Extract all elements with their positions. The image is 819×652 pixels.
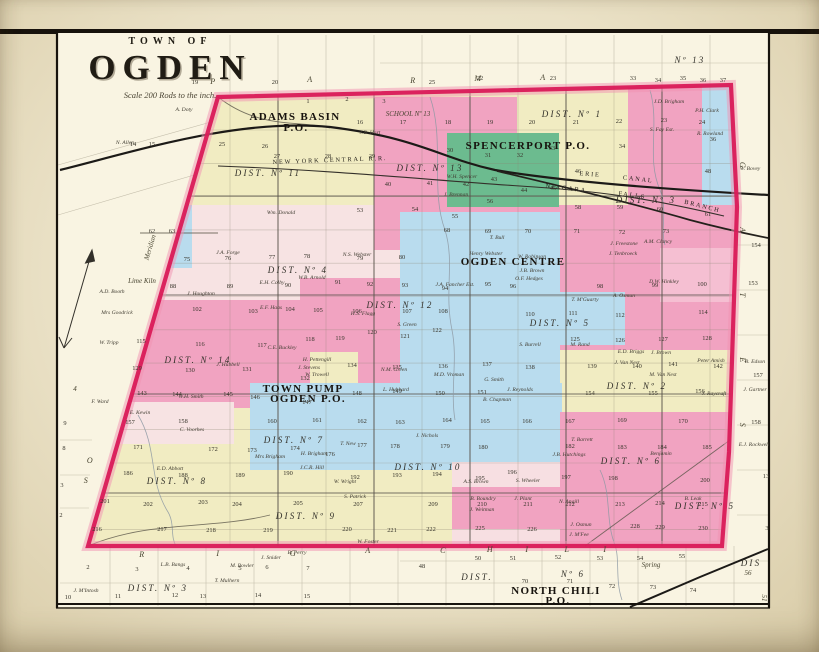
- lot-number: 13: [763, 473, 769, 480]
- adjacent-town-letter: I: [524, 545, 528, 554]
- lot-number: 50: [475, 555, 481, 562]
- lot-number: 125: [570, 336, 580, 343]
- lot-number: 18: [445, 119, 451, 126]
- owner-name: T. New: [340, 441, 356, 447]
- adjacent-town-letter: O: [87, 456, 93, 465]
- owner-name: E.F. Haas: [259, 305, 282, 311]
- lot-number: 48: [419, 563, 425, 570]
- lot-number: 62: [149, 228, 155, 235]
- lot-number: 161: [312, 417, 322, 424]
- patch-west-blush: [118, 402, 234, 444]
- lot-number: 2: [86, 564, 89, 571]
- lot-number: 222: [426, 526, 436, 533]
- adjacent-town-letter: L: [564, 545, 570, 554]
- district-label: DIST. Nº 12: [365, 300, 433, 310]
- lot-number: 92: [367, 281, 373, 288]
- lot-number: 162: [357, 418, 367, 425]
- lot-number: 220: [342, 526, 352, 533]
- margin-label: 56: [745, 569, 753, 577]
- owner-name: J.B. Brown: [520, 268, 545, 274]
- owner-name: H. Brigham: [300, 451, 327, 457]
- lot-number: 110: [525, 311, 534, 318]
- lot-number: 69: [485, 228, 491, 235]
- district-label: DIST. Nº 3: [127, 583, 188, 593]
- lot-number: 203: [198, 499, 208, 506]
- lot-number: 196: [507, 469, 517, 476]
- lot-number: 106: [352, 308, 362, 315]
- district-label: DIST. Nº 8: [146, 476, 207, 486]
- district-label: DIST. Nº 7: [263, 435, 324, 445]
- owner-name: Mrs Brigham: [254, 454, 285, 460]
- place-label: P.O.: [284, 122, 309, 134]
- adjacent-town-letter: T: [738, 293, 747, 298]
- lot-number: 33: [630, 75, 636, 82]
- lot-number: 160: [267, 418, 277, 425]
- owner-name: L.B. Bangs: [160, 562, 186, 568]
- lot-number: 205: [293, 500, 303, 507]
- lot-number: 93: [402, 282, 408, 289]
- lot-number: 165: [480, 418, 490, 425]
- lot-number: 127: [658, 336, 668, 343]
- lot-number: 41: [427, 180, 433, 187]
- lot-number: 158: [751, 419, 761, 426]
- owner-name: S. Burrell: [519, 342, 541, 348]
- lot-number: 145: [223, 391, 233, 398]
- owner-name: S. Patrick: [344, 494, 367, 500]
- lot-number: 33: [549, 145, 555, 152]
- lot-number: 51: [510, 555, 516, 562]
- patch-dist3-light: [660, 248, 739, 302]
- lot-number: 17: [400, 119, 407, 126]
- district-label: DIST. Nº 2: [606, 381, 667, 391]
- lot-number: 70: [522, 578, 528, 585]
- owner-name: A.D. Booth: [98, 289, 124, 295]
- owner-name: A. Doty: [174, 107, 193, 113]
- railroad-label: ERIE: [579, 170, 601, 178]
- lot-number: 21: [573, 119, 579, 126]
- lot-number: 35: [680, 75, 686, 82]
- lot-number: 128: [702, 335, 712, 342]
- lot-number: 202: [143, 501, 153, 508]
- lot-number: 63: [169, 228, 175, 235]
- lot-number: 197: [561, 474, 571, 481]
- lot-number: 75: [184, 256, 190, 263]
- owner-name: M. Bowler: [229, 563, 254, 569]
- lot-number: 32: [517, 152, 523, 159]
- lot-number: 24: [699, 119, 706, 126]
- lot-number: 11: [115, 593, 121, 600]
- lot-number: 25: [219, 141, 225, 148]
- map-scale-note: Scale 200 Rods to the inch.: [68, 90, 272, 100]
- lot-number: 157: [753, 372, 763, 379]
- lot-number: 185: [702, 444, 712, 451]
- lot-number: 163: [395, 419, 405, 426]
- lot-number: 70: [525, 228, 531, 235]
- lot-number: 142: [713, 363, 723, 370]
- owner-name: W.H. Spencer: [447, 174, 478, 180]
- lot-number: 134: [347, 362, 357, 369]
- lot-number: 80: [399, 254, 405, 261]
- lot-number: 114: [698, 309, 708, 316]
- lot-number: 15: [304, 593, 310, 600]
- lot-number: 176: [325, 451, 335, 458]
- margin-label: Spring: [642, 561, 661, 569]
- lot-number: 55: [679, 553, 685, 560]
- lot-number: 34: [655, 77, 662, 84]
- owner-name: F. Ward: [90, 399, 108, 405]
- lot-number: 107: [402, 308, 412, 315]
- lot-number: 195: [475, 475, 485, 482]
- lot-number: 148: [352, 390, 362, 397]
- lot-number: 59: [617, 204, 623, 211]
- lot-number: 166: [522, 418, 532, 425]
- district-label: Nº 13: [673, 55, 705, 65]
- lot-number: 188: [178, 472, 188, 479]
- lot-number: 178: [390, 443, 400, 450]
- owner-name: E.H. Colby: [258, 280, 285, 286]
- lot-number: 126: [615, 337, 625, 344]
- lot-number: 1: [306, 98, 309, 105]
- lot-number: 189: [235, 472, 245, 479]
- lot-number: 45: [550, 185, 556, 192]
- owner-name: T. M'Guarty: [571, 297, 599, 303]
- lot-number: 43: [491, 176, 497, 183]
- adjacent-town-letter: S: [738, 423, 747, 428]
- adjacent-town-letter: H: [486, 545, 494, 554]
- lot-number: 170: [678, 418, 688, 425]
- lot-number: 16: [357, 119, 363, 126]
- lot-number: 130: [185, 367, 195, 374]
- lot-number: 72: [619, 229, 625, 236]
- lot-number: 177: [357, 442, 367, 449]
- lot-number: 192: [350, 474, 360, 481]
- lot-number: 2: [59, 512, 62, 519]
- lot-number: 6: [265, 564, 268, 571]
- lot-number: 53: [597, 555, 603, 562]
- lot-number: 105: [313, 307, 323, 314]
- owner-name: W.H. Smith: [178, 394, 203, 400]
- lot-number: 55: [452, 213, 458, 220]
- owner-name: S. Fay Est.: [650, 127, 674, 133]
- lot-number: 89: [227, 283, 233, 290]
- lot-number: 118: [305, 336, 314, 343]
- owner-name: W. Bovey: [740, 166, 761, 172]
- owner-name: A. Osmun: [612, 293, 635, 299]
- map-title: OGDEN: [68, 48, 272, 88]
- lot-number: 58: [575, 204, 581, 211]
- lot-number: 73: [663, 228, 669, 235]
- lot-number: 151: [477, 389, 487, 396]
- owner-name: J. Stevens: [298, 365, 320, 371]
- lot-number: 108: [438, 308, 448, 315]
- margin-label: SCHOOL Nº 13: [386, 110, 431, 118]
- lot-number: 146: [250, 394, 260, 401]
- lot-number: 210: [477, 501, 487, 508]
- lot-number: 72: [609, 583, 615, 590]
- owner-name: M.D. Vroman: [433, 372, 464, 378]
- owner-name: C.E. Buckley: [267, 345, 297, 351]
- lot-number: 221: [387, 527, 397, 534]
- lot-number: 116: [195, 341, 204, 348]
- owner-name: B. Chapman: [483, 397, 511, 403]
- adjacent-town-letter: S: [84, 476, 89, 485]
- lot-number: 95: [485, 281, 491, 288]
- owner-name: J. Houghton: [187, 291, 215, 297]
- lot-number: 137: [482, 361, 492, 368]
- lot-number: 141: [668, 361, 678, 368]
- lot-number: 36: [700, 77, 706, 84]
- adjacent-town-letter: A: [306, 75, 312, 84]
- map-title-block: TOWN OF OGDEN Scale 200 Rods to the inch…: [68, 36, 272, 100]
- adjacent-town-letter: R: [138, 550, 144, 559]
- lot-number: 12: [172, 592, 178, 599]
- lot-number: 117: [257, 342, 267, 349]
- adjacent-town-letter: A: [738, 226, 747, 232]
- owner-name: Mrs Goodrick: [100, 310, 133, 316]
- lot-number: 157: [125, 419, 135, 426]
- lot-number: 183: [617, 444, 627, 451]
- lot-number: 37: [720, 77, 727, 84]
- owner-name: J. Tenbroeck: [609, 251, 638, 257]
- owner-name: S. Wheeler: [516, 478, 541, 484]
- lot-number: 129: [132, 365, 142, 372]
- lot-number: 96: [510, 283, 516, 290]
- lot-number: 14: [130, 141, 137, 148]
- lot-number: 132: [300, 375, 310, 382]
- lot-number: 20: [529, 119, 535, 126]
- lot-number: 122: [432, 327, 442, 334]
- owner-name: A.M. Clancy: [643, 239, 673, 245]
- lot-number: 20: [272, 79, 278, 86]
- lot-number: 102: [192, 306, 202, 313]
- lot-number: 216: [92, 526, 102, 533]
- owner-name: J. Freestone: [610, 241, 638, 247]
- lot-number: 213: [615, 501, 625, 508]
- map-title-kicker: TOWN OF: [68, 36, 272, 47]
- owner-name: W. Robinson: [518, 254, 546, 260]
- lot-number: 54: [412, 206, 419, 213]
- lot-number: 27: [274, 153, 281, 160]
- atlas-page-photo: ADAMS BASINP.O.SPENCERPORT P.O.OGDEN CEN…: [0, 0, 819, 652]
- lot-number: 3: [60, 482, 63, 489]
- lot-number: 180: [478, 444, 488, 451]
- lot-number: 120: [367, 329, 377, 336]
- owner-name: J. Brown: [651, 350, 671, 356]
- owner-name: J.C.R. Hill: [300, 465, 324, 471]
- adjacent-town-letter: C: [440, 546, 446, 555]
- lot-number: 179: [440, 443, 450, 450]
- lot-number: 212: [565, 501, 575, 508]
- owner-name: E. Kewin: [129, 410, 151, 416]
- owner-name: J. Brennan: [444, 192, 469, 198]
- lot-number: 61: [705, 211, 711, 218]
- lot-number: 207: [353, 501, 363, 508]
- lot-number: 184: [657, 444, 667, 451]
- lot-number: 19: [487, 119, 493, 126]
- lot-number: 147: [302, 399, 312, 406]
- lot-number: 44: [521, 187, 528, 194]
- owner-name: J.D. Brigham: [654, 99, 684, 105]
- owner-name: J. Reynolds: [507, 387, 533, 393]
- lot-number: 88: [170, 283, 176, 290]
- lot-number: 115: [136, 338, 145, 345]
- lot-number: 154: [585, 390, 595, 397]
- lot-number: 174: [290, 445, 300, 452]
- lot-number: 48: [705, 168, 711, 175]
- district-label: DIST. Nº 6: [600, 456, 661, 466]
- lot-number: 155: [648, 390, 658, 397]
- owner-name: H. Pettengill: [302, 357, 332, 363]
- district-label: DIST. Nº 9: [275, 511, 336, 521]
- lot-number: 29: [369, 153, 375, 160]
- district-label: DIST. Nº 13: [395, 163, 463, 173]
- lot-number: 217: [157, 526, 167, 533]
- lot-number: 140: [632, 363, 642, 370]
- owner-name: J. Nichols: [416, 433, 438, 439]
- lot-number: 201: [100, 498, 110, 505]
- adjacent-town-letter: A: [364, 546, 370, 555]
- adjacent-town-letter: I: [602, 545, 606, 554]
- lot-number: 218: [206, 527, 216, 534]
- lot-number: 10: [65, 594, 71, 601]
- owner-name: J. Gartner: [743, 387, 767, 393]
- owner-name: Wm. Donald: [267, 210, 295, 216]
- place-label: OGDEN CENTRE: [461, 256, 566, 268]
- lot-number: 111: [568, 310, 577, 317]
- lot-number: 60: [657, 206, 663, 213]
- lot-number: 26: [262, 143, 268, 150]
- lot-number: 13: [200, 593, 206, 600]
- lot-number: 22: [477, 75, 483, 82]
- district-label: DIST.: [460, 572, 493, 582]
- owner-name: J. Snider: [261, 555, 282, 561]
- lot-number: 164: [442, 417, 452, 424]
- lot-number: 139: [587, 363, 597, 370]
- lot-number: 228: [630, 523, 640, 530]
- owner-name: B. Edson: [745, 359, 765, 365]
- lot-number: 71: [567, 578, 573, 585]
- lot-number: 204: [232, 501, 242, 508]
- owner-name: W.B. Arnold: [298, 275, 325, 281]
- lot-number: 100: [697, 281, 707, 288]
- owner-name: C. Voorhes: [180, 427, 204, 433]
- lot-number: 214: [655, 500, 665, 507]
- adjacent-town-letter: R: [409, 76, 415, 85]
- lot-number: 172: [208, 446, 218, 453]
- lot-number: 74: [690, 587, 697, 594]
- owner-name: J.B. Hutchings: [552, 452, 585, 458]
- lot-number: 135: [392, 364, 402, 371]
- lot-number: 53: [357, 207, 363, 214]
- lot-number: 200: [700, 477, 710, 484]
- lot-number: 3: [765, 525, 768, 532]
- lot-number: 34: [619, 143, 626, 150]
- owner-name: J. Raycraft: [702, 390, 727, 397]
- district-label: DIST. Nº 10: [393, 462, 461, 472]
- lot-number: 149: [392, 388, 402, 395]
- lot-number: 194: [432, 471, 442, 478]
- lot-number: 150: [435, 390, 445, 397]
- lot-number: 153: [748, 280, 758, 287]
- lot-number: 136: [438, 363, 448, 370]
- lot-number: 131: [242, 366, 252, 373]
- lot-number: 198: [608, 475, 618, 482]
- lot-number: 154: [751, 242, 761, 249]
- lot-number: 211: [523, 501, 532, 508]
- lot-number: 22: [616, 118, 622, 125]
- lot-number: 54: [637, 555, 644, 562]
- lot-number: 52: [555, 554, 561, 561]
- lot-number: 193: [392, 472, 402, 479]
- lot-number: 31: [485, 152, 491, 159]
- lot-number: 56: [487, 198, 493, 205]
- lot-number: 79: [357, 255, 363, 262]
- owner-name: J.B. Hart: [360, 130, 381, 136]
- lot-number: 3: [135, 566, 138, 573]
- lot-number: 68: [444, 227, 450, 234]
- lot-number: 76: [225, 255, 231, 262]
- lot-number: 99: [652, 282, 658, 289]
- district-label: DIS: [740, 558, 762, 568]
- lot-number: 229: [655, 524, 665, 531]
- adjacent-town-letter: I: [215, 549, 219, 558]
- lot-number: 121: [400, 333, 410, 340]
- lot-number: 90: [285, 282, 291, 289]
- owner-name: W. Tripp: [99, 340, 118, 346]
- lot-number: 226: [527, 526, 537, 533]
- lot-number: 3: [382, 98, 385, 105]
- owner-name: G. Smith: [484, 377, 504, 383]
- lot-number: 143: [137, 390, 147, 397]
- lot-number: 8: [62, 445, 65, 452]
- lot-number: 209: [428, 501, 438, 508]
- owner-name: J. Hubbell: [216, 362, 240, 368]
- lot-number: 112: [615, 312, 624, 319]
- lot-number: 167: [565, 418, 575, 425]
- lot-number: 230: [698, 525, 708, 532]
- lot-number: 219: [263, 527, 273, 534]
- lot-number: 156: [695, 388, 705, 395]
- owner-name: S. Green: [397, 322, 417, 328]
- owner-name: E.J. Rockwell: [738, 442, 770, 448]
- lot-number: 5: [238, 565, 241, 572]
- owner-name: T. Mulhern: [215, 578, 240, 584]
- lot-number: 15: [149, 141, 155, 148]
- lot-number: 77: [269, 254, 276, 261]
- owner-name: J. Osmun: [570, 522, 591, 528]
- margin-label: 51: [760, 595, 768, 602]
- lot-number: 91: [335, 279, 341, 286]
- lot-number: 104: [285, 306, 295, 313]
- lot-number: 119: [335, 335, 344, 342]
- lot-number: 36: [710, 136, 716, 143]
- lot-number: 78: [304, 253, 310, 260]
- district-label: DIST. Nº 11: [234, 168, 301, 178]
- lot-number: 215: [698, 501, 708, 508]
- lot-number: 28: [325, 153, 331, 160]
- owner-name: J. M'Fee: [569, 532, 589, 538]
- lot-number: 158: [178, 418, 188, 425]
- lot-number: 190: [283, 470, 293, 477]
- lot-number: 14: [255, 592, 262, 599]
- owner-name: E.D. Briggs: [617, 349, 645, 355]
- lot-number: 73: [650, 584, 656, 591]
- lot-number: 25: [429, 79, 435, 86]
- owner-name: Benjamin: [650, 451, 672, 457]
- lot-number: 46: [575, 168, 581, 175]
- district-label: DIST. Nº 4: [267, 265, 328, 275]
- place-label: SPENCERPORT P.O.: [466, 140, 591, 152]
